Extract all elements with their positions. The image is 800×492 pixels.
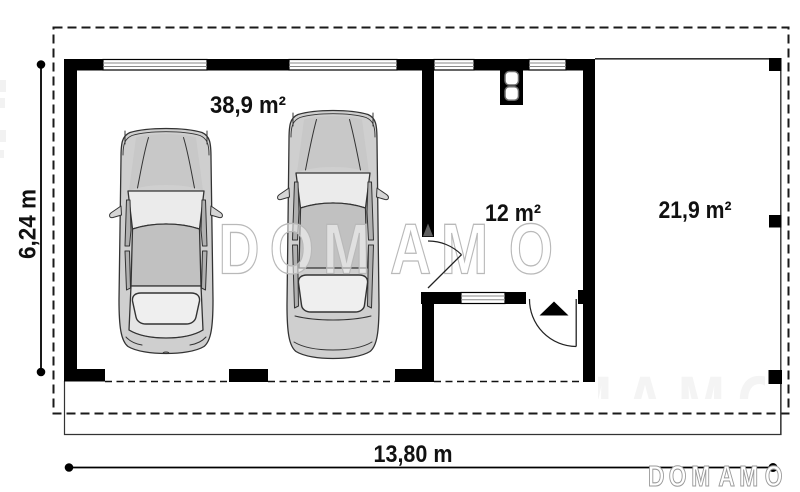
svg-text:6,24 m: 6,24 m (15, 189, 42, 259)
svg-text:13,80 m: 13,80 m (374, 441, 453, 468)
svg-text:12 m²: 12 m² (485, 200, 541, 227)
svg-text:21,9 m²: 21,9 m² (659, 197, 732, 224)
svg-text:38,9 m²: 38,9 m² (210, 92, 286, 119)
